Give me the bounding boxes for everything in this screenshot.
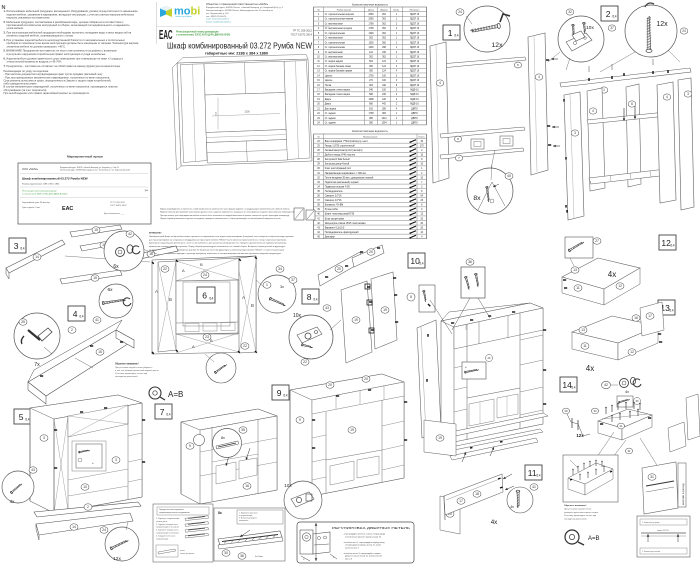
svg-text:МДФ 16: МДФ 16 — [410, 93, 419, 96]
svg-text:Ключ шестигранный №4: Ключ шестигранный №4 — [325, 167, 352, 170]
svg-text:Шкант пластмассовый 8*30: Шкант пластмассовый 8*30 — [325, 213, 355, 216]
svg-text:Фасадная стенка ящика: Фасадная стенка ящика — [325, 89, 351, 92]
svg-text:проверьте диагонали каркаса ящ: проверьте диагонали каркаса ящика. — [564, 512, 599, 514]
svg-text:Шкаф комбинированный 03.272 Ру: Шкаф комбинированный 03.272 Румба NEW — [167, 41, 313, 50]
svg-text:Петля вкладная 35 мм с доводчи: Петля вкладная 35 мм с доводчиком планко… — [325, 176, 374, 179]
svg-text:в том, что размеры диагоналей: в том, что размеры диагоналей изделия ра… — [115, 369, 160, 372]
svg-text:1. Завинтите до упора: 1. Завинтите до упора — [642, 522, 660, 524]
svg-text:2066: 2066 — [368, 14, 374, 16]
svg-text:Комплектовочная ведомость: Комплектовочная ведомость — [352, 129, 389, 133]
svg-text:2: 2 — [87, 505, 89, 509]
svg-text:4x: 4x — [10, 499, 16, 504]
svg-text:/14: /14 — [313, 298, 318, 302]
svg-text:12: 12 — [630, 350, 634, 354]
svg-text:8x: 8x — [218, 511, 222, 515]
svg-text:1314: 1314 — [381, 118, 387, 120]
svg-text:Общество с ограниченной ответс: Общество с ограниченной ответственностью… — [206, 3, 269, 6]
svg-text:в результате нарушения потреби: в результате нарушения потребителем прав… — [7, 52, 107, 56]
svg-text:мебель для дома: мебель для дома — [176, 16, 193, 18]
svg-text:15: 15 — [98, 350, 102, 354]
svg-text:Маркировочный ярлык: Маркировочный ярлык — [67, 155, 103, 159]
svg-text:22: 22 — [243, 344, 247, 348]
svg-text:/14: /14 — [283, 394, 288, 398]
svg-text:ВНИМАНИЕ!: ВНИМАНИЕ! — [149, 232, 162, 235]
svg-text:2066: 2066 — [368, 19, 374, 21]
svg-text:10x: 10x — [293, 313, 302, 319]
svg-text:направляющей на боковине: направляющей на боковине — [156, 532, 179, 535]
svg-text:29: 29 — [564, 409, 568, 413]
svg-text:A=B: A=B — [588, 536, 600, 542]
svg-text:относительной влажности воздух: относительной влажности воздуха от 45-70… — [7, 59, 63, 63]
svg-text:43: 43 — [325, 306, 329, 310]
svg-text:Колич.: Колич. — [419, 136, 426, 138]
svg-text:20: 20 — [369, 250, 373, 254]
svg-text:4x: 4x — [510, 505, 514, 509]
svg-text:При установке задней стенки: При установке задней стенки — [564, 508, 591, 511]
svg-text:A=B: A=B — [168, 390, 183, 399]
svg-text:8x: 8x — [221, 436, 225, 440]
svg-text:ТР ТС 025-2012: ТР ТС 025-2012 — [293, 29, 313, 33]
svg-text:/14: /14 — [79, 315, 84, 319]
svg-text:Ст. вертикальная: Ст. вертикальная — [325, 56, 344, 58]
svg-text:19: 19 — [350, 428, 354, 432]
svg-text:ГОСТ 16371-2014: ГОСТ 16371-2014 — [110, 205, 127, 207]
svg-text:6: 6 — [202, 291, 207, 301]
svg-text:Регистрационный номер декларац: Регистрационный номер декларации — [176, 31, 219, 34]
svg-text:Срок службы: 5 лет: Срок службы: 5 лет — [22, 207, 40, 209]
svg-text:9: 9 — [299, 418, 301, 422]
svg-text:Установку производить только п: Установку производить только при — [115, 373, 147, 375]
svg-text:Ширина: Ширина — [380, 9, 389, 11]
svg-text:41: 41 — [532, 485, 536, 489]
svg-text:Саморез 3,0*16: Саморез 3,0*16 — [325, 196, 342, 198]
svg-text:Ст. вертикальная: Ст. вертикальная — [325, 38, 344, 40]
svg-text:МДФ 16: МДФ 16 — [410, 98, 419, 101]
svg-text:Сайт: www.mobi-mebel.ru: Сайт: www.mobi-mebel.ru — [206, 18, 229, 21]
svg-text:3±0,5мм: 3±0,5мм — [255, 556, 263, 558]
svg-text:ЕАС: ЕАС — [159, 28, 173, 42]
svg-text:двери по высоте (напр. Z), зат: двери по высоте (напр. Z), затем затянит… — [345, 556, 382, 558]
svg-text:Изделие мебели при перевозке т: Изделие мебели при перевозке транспортом… — [160, 211, 295, 214]
svg-text:/14: /14 — [209, 296, 214, 300]
svg-text:Подпятник (накленный) черный: Подпятник (накленный) черный — [325, 181, 359, 184]
svg-text:32: 32 — [568, 10, 572, 14]
svg-text:24: 24 — [682, 29, 686, 33]
svg-text:Дверь: Дверь — [325, 99, 332, 101]
svg-text:3: 3 — [43, 436, 45, 440]
svg-text:Фактический адрес: 607686 Росс: Фактический адрес: 607686 Россия, Нижего… — [206, 9, 273, 12]
svg-text:4: 4 — [666, 95, 668, 99]
svg-text:19: 19 — [383, 308, 387, 312]
svg-text:A: A — [155, 289, 158, 294]
svg-text:габаритные мм: 2188 х 384 х 18: габаритные мм: 2188 х 384 х 1860 — [205, 51, 268, 55]
svg-text:Ст. вертикальная: Ст. вертикальная — [325, 23, 344, 25]
svg-text:4x: 4x — [586, 364, 594, 373]
svg-text:/14: /14 — [670, 244, 675, 248]
svg-text:/14: /14 — [612, 15, 617, 19]
svg-text:16: 16 — [634, 316, 638, 320]
svg-text:30: 30 — [224, 551, 228, 555]
svg-text:7. Предприятие - изготовитель: 7. Предприятие - изготовитель оставляет … — [4, 64, 122, 68]
svg-text:B: B — [200, 262, 203, 267]
svg-text:ДВПО: ДВПО — [411, 108, 418, 110]
svg-text:направляющей от основной: направляющей от основной — [156, 526, 179, 529]
svg-text:о соответствии: ЕАЭС N RU Д-RU: о соответствии: ЕАЭС N RU Д-RU.ДМ04.В.00… — [22, 193, 68, 196]
svg-text:- отрегулируйте винтом 1 накло: - отрегулируйте винтом 1 наклон створки … — [343, 533, 385, 536]
svg-text:17: 17 — [459, 499, 463, 503]
svg-text:2. Отделите боковую часть: 2. Отделите боковую часть — [156, 524, 178, 526]
svg-text:о соответствии: ЕАЭС N RU Д-RU: о соответствии: ЕАЭС N RU Д-RU.ДМ04.В.00… — [176, 34, 231, 37]
svg-text:При несоблюдении этих правил г: При несоблюдении этих правил гарантийный… — [4, 91, 90, 95]
svg-text:затяните винт 2: затяните винт 2 — [345, 547, 359, 549]
svg-text:6x: 6x — [113, 264, 119, 270]
svg-text:/14: /14 — [454, 34, 459, 38]
svg-text:Болажель ЧУ-БМ: Болажель ЧУ-БМ — [325, 205, 344, 207]
svg-text:нажать до щелчка: нажать до щелчка — [180, 553, 194, 555]
svg-text:4x: 4x — [625, 390, 629, 394]
svg-text:6x: 6x — [107, 287, 113, 293]
svg-text:/14: /14 — [571, 386, 576, 390]
svg-text:3: 3 — [574, 131, 576, 135]
svg-text:- ослабьте винты 3, отрегулиру: - ослабьте винты 3, отрегулируйте створк… — [343, 552, 381, 555]
svg-text:4: 4 — [592, 109, 594, 113]
svg-text:36: 36 — [468, 260, 472, 264]
svg-text:Комплектовочная ведомость: Комплектовочная ведомость — [352, 2, 389, 6]
svg-text:винтами к фасаду: винтами к фасаду — [681, 483, 685, 505]
svg-text:ЛДСП 16: ЛДСП 16 — [410, 56, 420, 58]
svg-text:15: 15 — [93, 276, 97, 280]
svg-text:1: 1 — [266, 283, 268, 287]
svg-text:Материал: Материал — [410, 9, 420, 11]
svg-text:Крепежные средства для креплен: Крепежные средства для крепления к стене… — [149, 243, 287, 245]
svg-text:Саморез 4,0*16: Саморез 4,0*16 — [325, 200, 342, 202]
svg-text:13: 13 — [581, 328, 585, 332]
svg-text:ДВПО: ДВПО — [411, 113, 418, 115]
svg-text:/14: /14 — [669, 309, 674, 313]
svg-text:ТР ТС 025-2012: ТР ТС 025-2012 — [110, 202, 126, 204]
svg-text:18: 18 — [475, 492, 479, 496]
svg-text:10x: 10x — [586, 25, 594, 31]
svg-text:ЛДСП 16: ЛДСП 16 — [410, 47, 420, 49]
svg-text:Евровинт 6,3x10,5: Евровинт 6,3x10,5 — [325, 227, 345, 229]
svg-text:Направляющая шариковая L = 300: Направляющая шариковая L = 300 мм — [325, 173, 366, 175]
svg-text:3x: 3x — [280, 285, 284, 289]
svg-text:Гарантийный срок: 24 месяца: Гарантийный срок: 24 месяца — [22, 201, 50, 204]
svg-text:✂: ✂ — [145, 188, 149, 193]
svg-text:1698: 1698 — [368, 99, 374, 101]
svg-text:42: 42 — [604, 383, 608, 387]
svg-text:Дата изготовления: ____: Дата изготовления: ____ — [104, 213, 126, 215]
svg-text:4: 4 — [538, 75, 540, 79]
svg-text:Ручка-скоба: Ручка-скоба — [325, 209, 339, 211]
svg-text:12: 12 — [618, 284, 622, 288]
svg-text:Заглушка декор-белый: Заглушка декор-белый — [325, 163, 350, 166]
svg-text:Ст. горизонтальная верхняя: Ст. горизонтальная верхняя — [325, 14, 355, 16]
svg-text:Демпфер: Демпфер — [325, 235, 336, 238]
svg-text:36: 36 — [240, 554, 244, 558]
svg-text:направляющих полного выдвижени: направляющих полного выдвижения — [159, 512, 190, 514]
svg-text:Ст. горизонтальная: Ст. горизонтальная — [325, 33, 346, 35]
svg-text:23: 23 — [205, 335, 209, 339]
svg-text:РЕГУЛИРОВКА ДВЕРНЫХ ПЕТЕЛЬ: РЕГУЛИРОВКА ДВЕРНЫХ ПЕТЕЛЬ — [332, 526, 410, 530]
svg-text:ДВПО: ДВПО — [411, 118, 418, 120]
svg-text:4. Соедините обе части: 4. Соедините обе части — [156, 535, 175, 537]
svg-text:Заглушка D 5мм белый: Заглушка D 5мм белый — [325, 158, 351, 161]
svg-text:A: A — [192, 344, 195, 349]
svg-text:42: 42 — [128, 232, 132, 236]
svg-text:10: 10 — [83, 485, 87, 489]
svg-text:7: 7 — [160, 407, 165, 417]
svg-text:5: 5 — [19, 412, 24, 422]
svg-text:3. Закрепите боковую часть: 3. Закрепите боковую часть — [156, 530, 179, 532]
svg-text:11: 11 — [576, 286, 580, 290]
svg-text:1300: 1300 — [368, 47, 374, 49]
svg-text:14: 14 — [72, 525, 76, 529]
svg-text:17: 17 — [648, 314, 652, 318]
svg-text:1300: 1300 — [368, 33, 374, 35]
svg-text:/14: /14 — [166, 413, 171, 417]
svg-text:направляющих: направляющих — [156, 538, 168, 540]
svg-text:12x: 12x — [656, 21, 668, 28]
svg-text:Шкаф комбинированный 03.272 Ру: Шкаф комбинированный 03.272 Румба NEW — [22, 177, 88, 181]
svg-text:винты 3: винты 3 — [345, 558, 352, 560]
svg-text:ЛДСП 16: ЛДСП 16 — [410, 66, 420, 68]
svg-text:1: 1 — [448, 28, 453, 38]
svg-text:ЛДСП 16: ЛДСП 16 — [410, 33, 420, 35]
svg-text:Ст. ящика задняя: Ст. ящика задняя — [325, 61, 344, 63]
svg-text:1768: 1768 — [368, 23, 374, 25]
svg-text:ГОСТ 16371-2014: ГОСТ 16371-2014 — [291, 33, 313, 37]
svg-text:22: 22 — [303, 360, 307, 364]
svg-text:Длина: Длина — [368, 9, 375, 11]
svg-text:8: 8 — [307, 292, 312, 302]
svg-text:ООО «Моби»: ООО «Моби» — [22, 167, 39, 171]
svg-text:ЛДСП 16: ЛДСП 16 — [410, 71, 420, 73]
svg-text:Размер изделия (мм): 2188 х 38: Размер изделия (мм): 2188 х 384 х 1860 — [22, 184, 60, 186]
svg-text:Полка: Полка — [325, 85, 332, 87]
svg-text:24: 24 — [102, 528, 106, 532]
svg-text:1. Задвинуть направляющие: 1. Задвинуть направляющие — [156, 518, 179, 520]
svg-text:19: 19 — [438, 436, 442, 440]
svg-text:ЛДСП 16: ЛДСП 16 — [410, 80, 420, 82]
svg-text:Приобретенный Вами набор мебел: Приобретенный Вами набор мебели может хр… — [149, 235, 294, 238]
svg-text:/14: /14 — [25, 418, 30, 422]
svg-text:ЛДСП 16: ЛДСП 16 — [410, 28, 420, 30]
svg-text:1700: 1700 — [368, 75, 374, 77]
svg-text:ДВПО: ДВПО — [411, 123, 418, 125]
svg-text:Подвеска плоская Ч-05: Подвеска плоская Ч-05 — [325, 186, 351, 188]
svg-text:относительно верхнего корпуса: относительно верхнего корпуса (напр. X) — [345, 536, 381, 538]
svg-text:24: 24 — [458, 10, 462, 14]
svg-text:готовые до их: готовые до их — [156, 521, 167, 523]
svg-text:совпадении диагоналей.: совпадении диагоналей. — [115, 375, 138, 378]
svg-text:ЛДСП 16: ЛДСП 16 — [410, 61, 420, 63]
svg-text:макс.12,13: макс.12,13 — [658, 530, 670, 532]
svg-text:Регистрационный номер декларац: Регистрационный номер декларации — [22, 190, 56, 193]
svg-text:13: 13 — [573, 268, 577, 272]
svg-text:нагрузок, указанных изготовите: нагрузок, указанных изготовителем. — [7, 16, 51, 19]
svg-text:Шток эксцентрика: Шток эксцентрика — [325, 218, 345, 220]
svg-text:2: 2 — [606, 9, 611, 19]
svg-text:Ст. ящика боковая правая: Ст. ящика боковая правая — [325, 71, 353, 73]
svg-text:элементов мебели не должна пре: элементов мебели не должна превышать +40… — [7, 44, 67, 48]
svg-text:37: 37 — [291, 278, 295, 282]
svg-text:Колич.: Колич. — [393, 9, 400, 11]
svg-text:4: 4 — [73, 309, 78, 319]
svg-text:ЕАС: ЕАС — [62, 206, 73, 212]
svg-text:ЛДСП 16: ЛДСП 16 — [410, 75, 420, 77]
svg-text:14: 14 — [35, 255, 39, 259]
svg-text:Фирма-производитель оставляет: Фирма-производитель оставляет за собой п… — [160, 208, 290, 211]
svg-text:створки двери и корпуса (напр.: створки двери и корпуса (напр. Y), затем — [345, 545, 382, 547]
svg-text:ЛДСП 16: ЛДСП 16 — [410, 14, 420, 16]
svg-text:20: 20 — [337, 267, 341, 271]
svg-text:Порядок монтажа шариковых: Порядок монтажа шариковых — [159, 509, 184, 511]
svg-text:При хранении и транспортирован: При хранении и транспортировании мебель … — [160, 214, 290, 217]
svg-text:20: 20 — [364, 377, 368, 381]
svg-text:ЛДСП 16: ЛДСП 16 — [410, 19, 420, 21]
svg-text:Юридический адрес: 603035 Росс: Юридический адрес: 603035 Россия, г. Ниж… — [206, 6, 284, 9]
svg-text:3: 3 — [115, 458, 117, 462]
svg-text:8x: 8x — [473, 195, 481, 202]
svg-text:2: 2 — [71, 328, 73, 332]
svg-text:34: 34 — [593, 409, 597, 413]
svg-text:10x: 10x — [284, 483, 292, 488]
svg-text:защелкните: защелкните — [239, 520, 248, 522]
svg-text:/14: /14 — [20, 247, 25, 251]
svg-text:15: 15 — [94, 228, 98, 232]
svg-text:Гвоздь 1,6*25 строительный: Гвоздь 1,6*25 строительный — [325, 144, 356, 147]
svg-text:8: 8 — [410, 295, 412, 299]
svg-text:элементы изделий мебели, сопри: элементы изделий мебели, соприкасающиеся… — [7, 34, 74, 38]
svg-text:A: A — [182, 268, 185, 273]
svg-text:16: 16 — [149, 252, 153, 256]
svg-text:27: 27 — [595, 239, 599, 243]
svg-text:Цоколь: Цоколь — [325, 75, 333, 77]
svg-text:Ст. горизонтальная нижняя: Ст. горизонтальная нижняя — [325, 19, 354, 21]
svg-text:9: 9 — [189, 444, 191, 448]
svg-text:A: A — [242, 295, 245, 300]
svg-text:Ст. ящика боковая левая: Ст. ящика боковая левая — [325, 66, 352, 68]
svg-text:приложенной изготовителем инст: приложенной изготовителем инструкцией по… — [7, 23, 131, 27]
svg-text:6: 6 — [631, 102, 633, 106]
svg-text:Дюбель-гвоздь 6*40 пластик.: Дюбель-гвоздь 6*40 пластик. — [325, 155, 356, 157]
svg-text:34: 34 — [278, 267, 282, 271]
svg-text:12x: 12x — [113, 556, 121, 562]
svg-text:1768: 1768 — [368, 113, 374, 115]
svg-text:31: 31 — [650, 475, 654, 479]
svg-text:1300: 1300 — [368, 42, 374, 44]
svg-text:21: 21 — [619, 424, 623, 428]
svg-text:12x: 12x — [576, 433, 584, 438]
svg-text:22: 22 — [163, 267, 167, 271]
svg-text:1304: 1304 — [381, 123, 387, 125]
svg-text:Эксцентрик-стяжка 15/15 пласти: Эксцентрик-стяжка 15/15 пластиковая — [325, 223, 367, 225]
svg-text:E-mail: mail@mobi-mebel.ru: E-mail: mail@mobi-mebel.ru — [206, 22, 231, 24]
svg-text:Полкодержатель фиксирующий: Полкодержатель фиксирующий — [325, 231, 359, 234]
svg-text:Ст. задняя: Ст. задняя — [325, 123, 337, 125]
svg-text:Обратите внимание!: Обратите внимание! — [115, 363, 139, 366]
svg-text:Дно ящика: Дно ящика — [325, 108, 337, 110]
svg-text:Винт-конфирмат 7*50/лотай внут: Винт-конфирмат 7*50/лотай внутр. шест. — [325, 140, 369, 143]
svg-text:3: 3 — [687, 92, 689, 96]
svg-text:Ст. горизонтальная: Ст. горизонтальная — [325, 47, 346, 49]
svg-text:Наименование: Наименование — [337, 9, 352, 11]
svg-text:Цоколь: Цоколь — [325, 80, 333, 82]
svg-text:9: 9 — [277, 388, 282, 398]
svg-text:ЛДСП 16: ЛДСП 16 — [410, 38, 420, 40]
svg-text:24: 24 — [203, 273, 207, 277]
svg-text:40: 40 — [507, 174, 511, 178]
svg-text:пос. Ждановский, д. 100: пос. Ждановский, д. 100 — [206, 12, 229, 15]
svg-text:для транспортировки на специал: для транспортировки на специально оборуд… — [149, 239, 287, 241]
svg-text:Полкодержатель: Полкодержатель — [325, 191, 344, 193]
svg-text:B: B — [251, 303, 254, 308]
svg-text:узлов мебели.: узлов мебели. — [7, 26, 25, 30]
svg-text:/14: /14 — [536, 474, 541, 478]
svg-text:20: 20 — [328, 383, 332, 387]
svg-text:Ст. вертикальная: Ст. вертикальная — [325, 52, 344, 54]
svg-text:19: 19 — [354, 318, 358, 322]
svg-text:Фактический адрес: 607686 Ниже: Фактический адрес: 607686 Нижегородская … — [60, 169, 130, 172]
svg-text:4x: 4x — [491, 519, 498, 526]
svg-text:16: 16 — [245, 484, 249, 488]
svg-text:Перед сборкой внимательно изуч: Перед сборкой внимательно изучите инстру… — [160, 217, 281, 220]
svg-text:ЛДСП 16: ЛДСП 16 — [410, 85, 420, 87]
svg-text:12x: 12x — [492, 42, 504, 49]
svg-text:Установку производить только п: Установку производить только при — [564, 515, 596, 517]
svg-text:- ослабьте винт 2, отрегулируй: - ослабьте винт 2, отрегулируйте вперед-… — [343, 541, 385, 544]
svg-text:ЛДСП 16: ЛДСП 16 — [410, 52, 420, 54]
svg-text:37: 37 — [610, 26, 614, 30]
svg-text:Ст. горизонтальная: Ст. горизонтальная — [325, 42, 346, 44]
svg-text:При установке задней стенки уб: При установке задней стенки убедитесь — [115, 366, 152, 369]
svg-text:1768: 1768 — [368, 28, 374, 30]
svg-text:Газовый амортизатор 8-й (газли: Газовый амортизатор 8-й (газлифт) — [325, 149, 363, 152]
svg-text:25: 25 — [21, 320, 25, 324]
svg-text:/14: /14 — [419, 262, 424, 266]
svg-text:4: 4 — [439, 81, 441, 85]
svg-text:МДФ 16: МДФ 16 — [410, 103, 419, 106]
svg-text:Ст. вертикальная средняя: Ст. вертикальная средняя — [325, 28, 353, 30]
svg-text:Наименование: Наименование — [363, 136, 378, 138]
svg-text:1: 1 — [603, 88, 605, 92]
svg-text:4x: 4x — [608, 270, 616, 279]
svg-text:31: 31 — [627, 449, 631, 453]
svg-text:1300: 1300 — [244, 111, 250, 114]
svg-text:Ст. задняя: Ст. задняя — [325, 113, 337, 115]
svg-text:41: 41 — [95, 318, 99, 322]
svg-text:Фасадная стенка ящика: Фасадная стенка ящика — [325, 93, 351, 96]
svg-text:Дверь: Дверь — [325, 104, 332, 106]
svg-text:тел.: 8(831) 214-04-74: тел.: 8(831) 214-04-74 — [206, 16, 227, 18]
svg-text:Обратите внимание!: Обратите внимание! — [564, 504, 587, 507]
svg-text:МДФ 16: МДФ 16 — [410, 89, 419, 92]
svg-text:2. Клеевые расстояния: 2. Клеевые расстояния — [642, 551, 660, 553]
svg-text:ЛДСП 16: ЛДСП 16 — [410, 42, 420, 44]
svg-text:B: B — [169, 297, 172, 302]
svg-text:43: 43 — [31, 468, 35, 472]
svg-text:совпадении диагоналей.: совпадении диагоналей. — [564, 517, 587, 520]
svg-text:35: 35 — [241, 428, 245, 432]
svg-text:Ст. задняя: Ст. задняя — [325, 118, 337, 120]
svg-text:ЛДСП 16: ЛДСП 16 — [410, 23, 420, 25]
svg-text:3: 3 — [14, 241, 19, 251]
svg-text:11: 11 — [583, 344, 587, 348]
